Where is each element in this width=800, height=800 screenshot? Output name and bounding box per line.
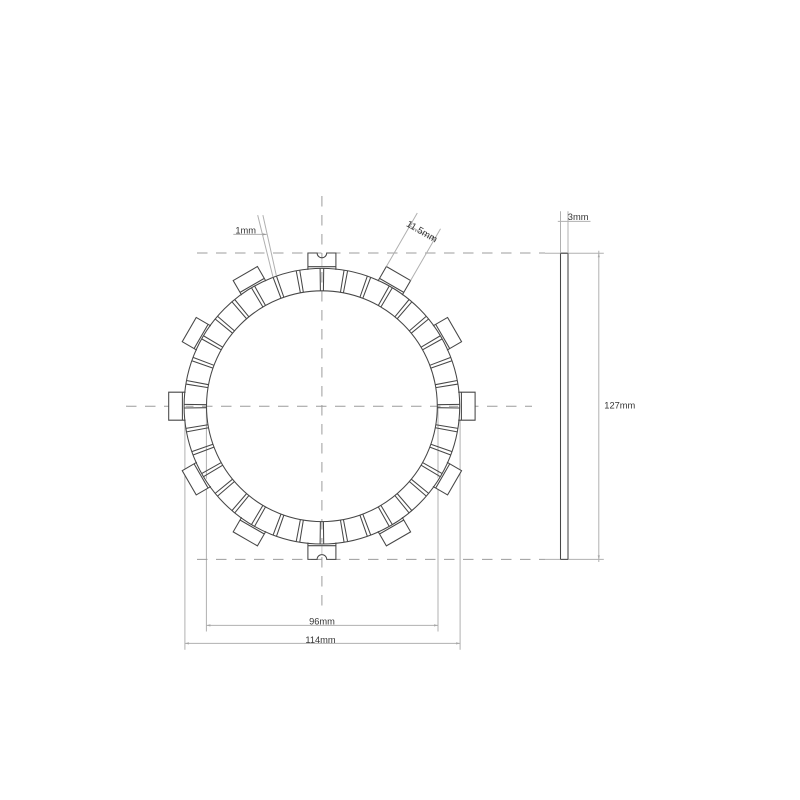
- svg-text:127mm: 127mm: [604, 401, 635, 411]
- svg-text:3mm: 3mm: [568, 212, 589, 222]
- svg-text:96mm: 96mm: [309, 616, 335, 626]
- svg-text:11.5mm: 11.5mm: [404, 219, 439, 246]
- svg-text:1mm: 1mm: [235, 226, 256, 236]
- svg-text:114mm: 114mm: [305, 635, 336, 645]
